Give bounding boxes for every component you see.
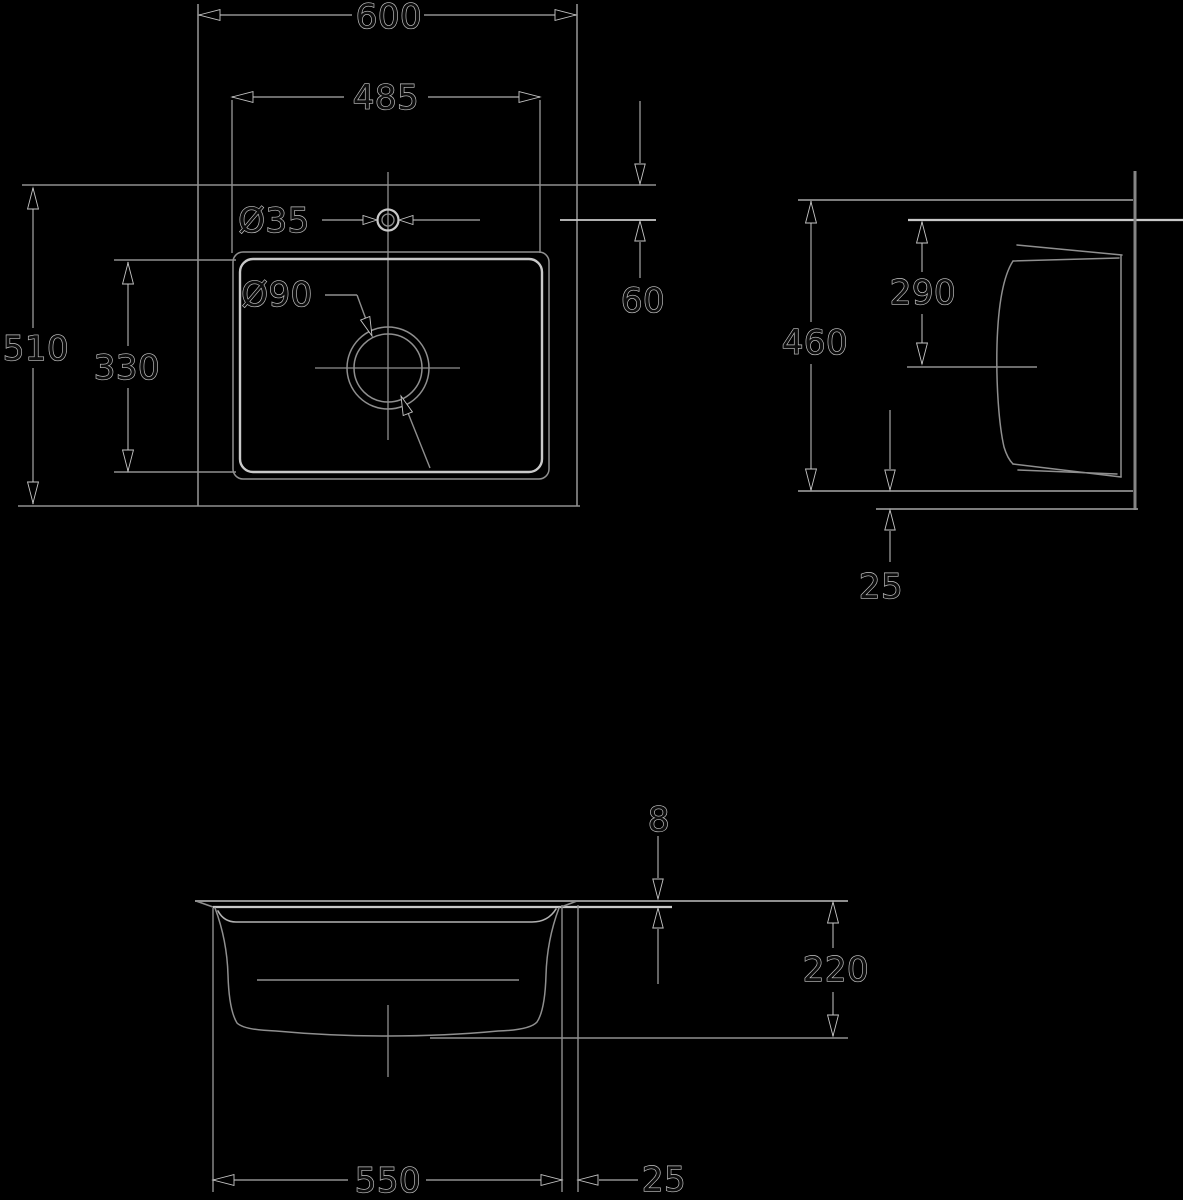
sink-technical-drawing-page: 600485510330Ø35Ø906046029025822055025 <box>0 0 1183 1200</box>
front-bowl-inner-rim <box>218 909 556 922</box>
dim-510-arrow-top <box>28 188 39 209</box>
dim-485-arrow-left <box>232 92 253 103</box>
dim-460-arrow-bottom <box>806 469 817 490</box>
dim-600-label: 600 <box>356 0 422 37</box>
dim-460-label: 460 <box>782 323 848 363</box>
dim-460-arrow-top <box>806 202 817 223</box>
dim-550-arrow-right <box>541 1175 562 1186</box>
side-bowl-left-wall <box>997 261 1013 464</box>
dim-550-label: 550 <box>355 1161 421 1200</box>
dim-510-arrow-bottom <box>28 482 39 503</box>
dim-330-arrow-bottom <box>123 450 134 471</box>
front-bowl-outline <box>215 908 559 1036</box>
dim-25side-label: 25 <box>859 567 903 607</box>
dim-35-arrow-left <box>363 216 377 225</box>
dim-600-arrow-right <box>555 10 576 21</box>
dim-290-arrow-bottom <box>917 343 928 364</box>
dim-220-label: 220 <box>803 950 869 990</box>
dim-25side-arrow-lower <box>885 510 895 530</box>
sink-technical-drawing: 600485510330Ø35Ø906046029025822055025 <box>0 0 1183 1200</box>
dim-485-label: 485 <box>353 78 419 118</box>
dim-60-arrow-upper <box>635 164 645 184</box>
dim-25b-arrow <box>578 1175 598 1185</box>
dim-25b-label: 25 <box>642 1160 686 1200</box>
dim-330-arrow-top <box>123 263 134 284</box>
dim-60-arrow-lower <box>635 221 645 241</box>
dim-220-arrow-top <box>828 902 839 923</box>
dim-290-arrow-top <box>917 222 928 243</box>
dim-330-label: 330 <box>94 348 160 388</box>
dim-8-arrow-lower <box>653 908 663 928</box>
dim-220-arrow-bottom <box>828 1015 839 1036</box>
side-bowl-rim-top-inner <box>1013 258 1119 261</box>
dim-60-label: 60 <box>621 281 665 321</box>
dim-8-label: 8 <box>648 800 670 840</box>
dim-550-arrow-left <box>213 1175 234 1186</box>
side-bowl-rim-top-outer <box>1017 245 1122 255</box>
dim-510-label: 510 <box>3 329 69 369</box>
dim-600-arrow-left <box>199 10 220 21</box>
dia-35-label: Ø35 <box>238 201 310 241</box>
dim-35-arrow-right <box>399 216 413 225</box>
dim-8-arrow-upper <box>653 879 663 899</box>
dia-90-label: Ø90 <box>241 275 313 315</box>
dim-290-label: 290 <box>890 273 956 313</box>
dim-25side-arrow-upper <box>885 470 895 490</box>
dim-485-arrow-right <box>519 92 540 103</box>
